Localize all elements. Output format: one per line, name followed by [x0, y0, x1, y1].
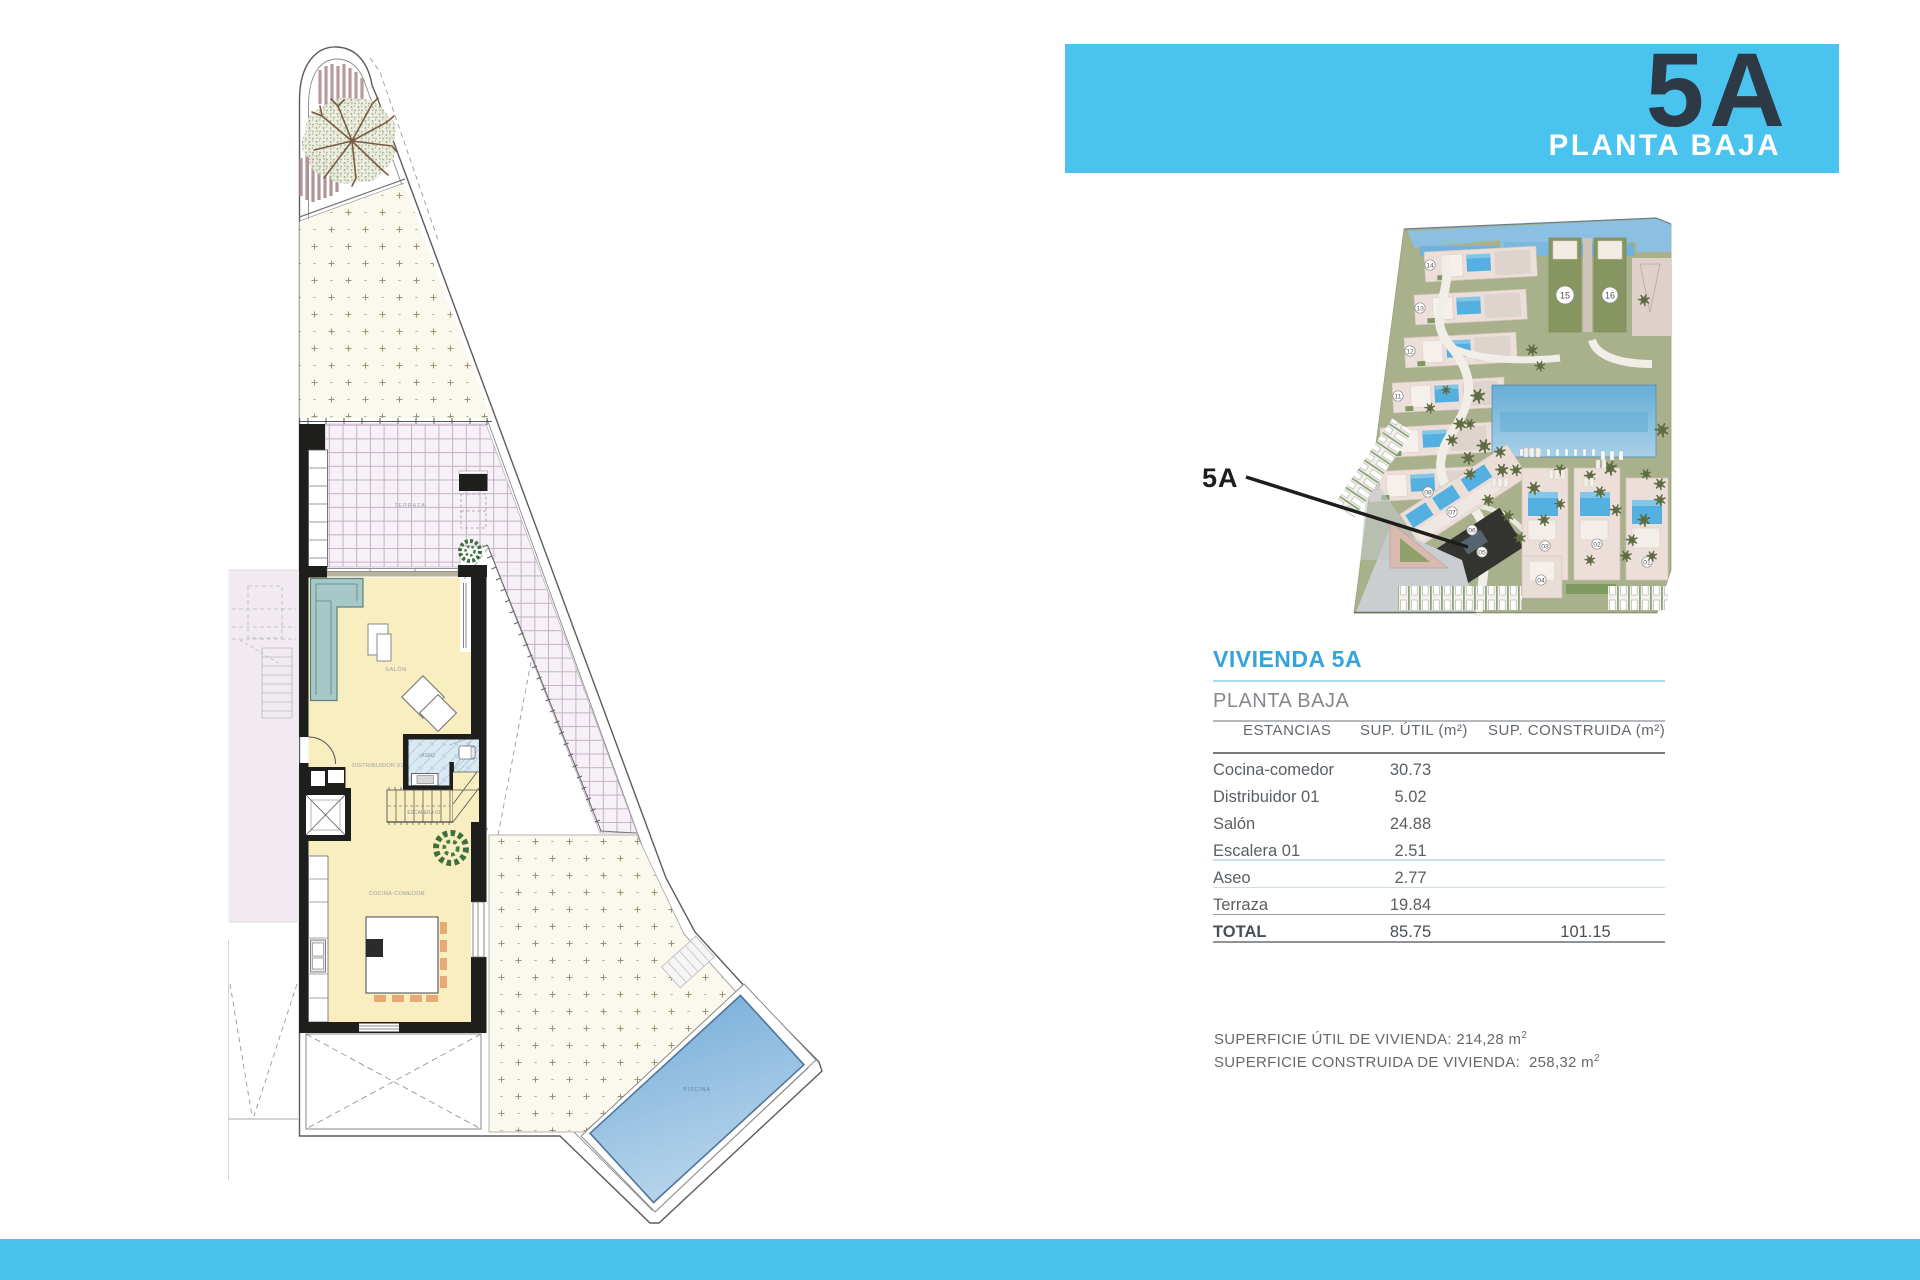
- svg-text:12: 12: [1406, 349, 1414, 356]
- svg-text:08: 08: [1424, 490, 1432, 497]
- svg-text:5A: 5A: [1202, 463, 1239, 493]
- svg-text:PISCINA: PISCINA: [683, 1087, 711, 1093]
- svg-text:13: 13: [1416, 306, 1424, 313]
- svg-text:DISTRIBUIDOR 01: DISTRIBUIDOR 01: [352, 763, 404, 769]
- svg-text:TERRAZA: TERRAZA: [394, 503, 425, 509]
- svg-text:05: 05: [1478, 550, 1486, 557]
- svg-text:06: 06: [1468, 528, 1476, 535]
- svg-text:COCINA-COMEDOR: COCINA-COMEDOR: [369, 891, 425, 897]
- svg-text:01: 01: [1643, 560, 1651, 567]
- svg-text:ASEO: ASEO: [421, 753, 435, 759]
- svg-text:02: 02: [1593, 542, 1601, 549]
- svg-text:16: 16: [1605, 290, 1615, 300]
- svg-text:15: 15: [1560, 290, 1570, 300]
- svg-text:14: 14: [1426, 263, 1434, 270]
- svg-text:SALÓN: SALÓN: [385, 666, 407, 673]
- svg-text:07: 07: [1448, 510, 1456, 517]
- svg-text:11: 11: [1394, 394, 1401, 401]
- svg-text:03: 03: [1541, 544, 1549, 551]
- svg-text:04: 04: [1537, 578, 1545, 585]
- svg-text:ESCALERA 01: ESCALERA 01: [407, 810, 441, 816]
